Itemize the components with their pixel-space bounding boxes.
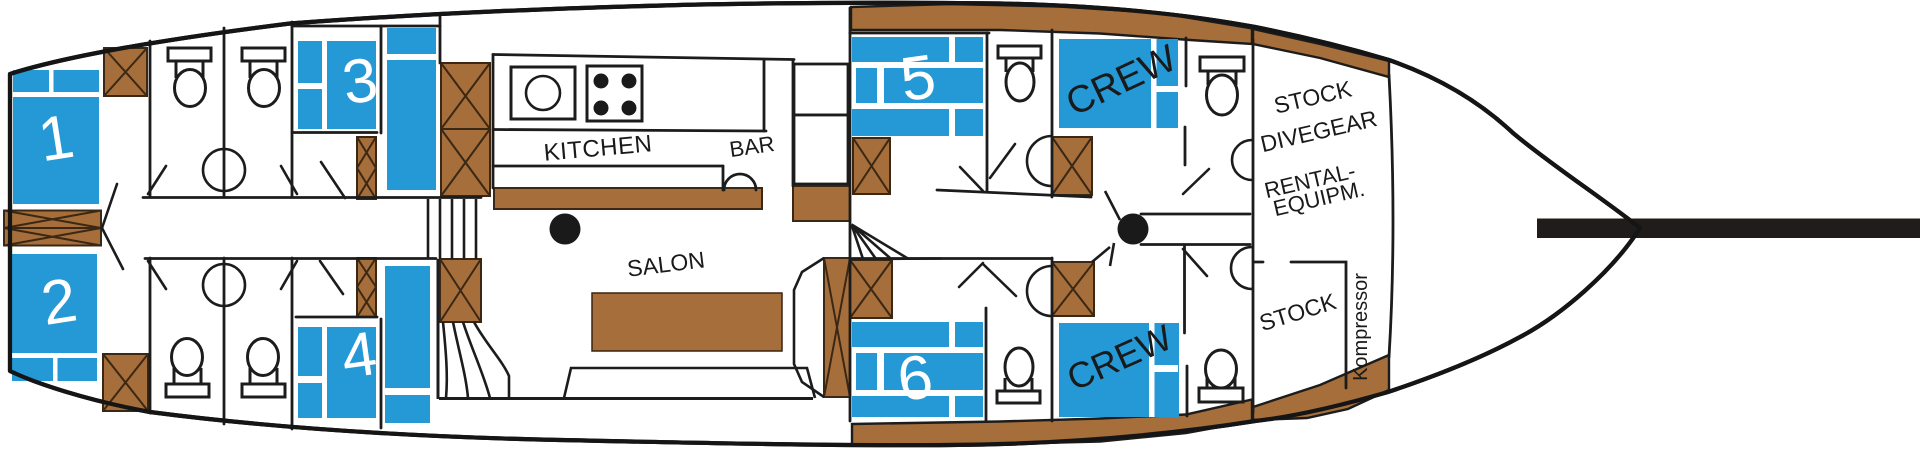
svg-text:Kompressor: Kompressor — [1350, 273, 1372, 381]
